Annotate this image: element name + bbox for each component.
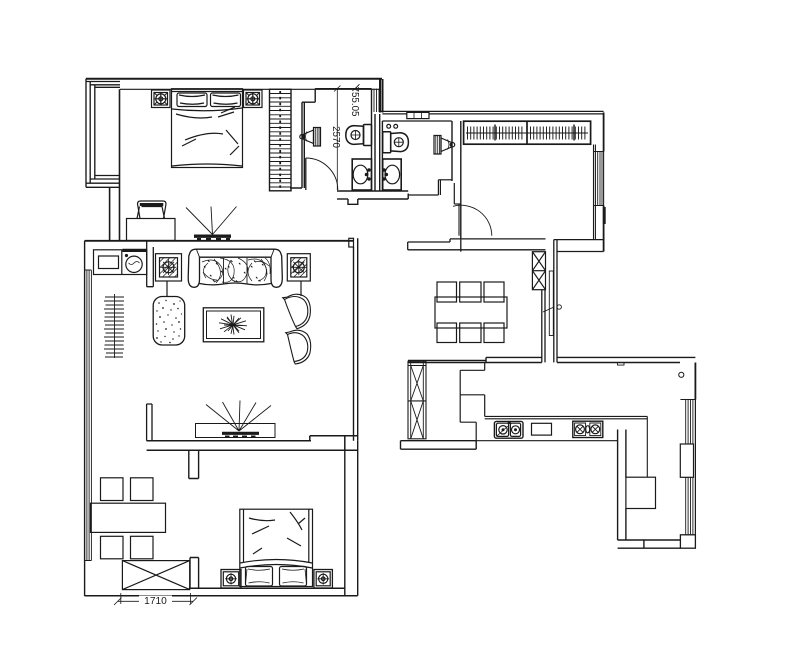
svg-text:755.05: 755.05 — [349, 87, 360, 118]
svg-text:2570: 2570 — [330, 126, 341, 148]
svg-text:1710: 1710 — [144, 596, 167, 607]
